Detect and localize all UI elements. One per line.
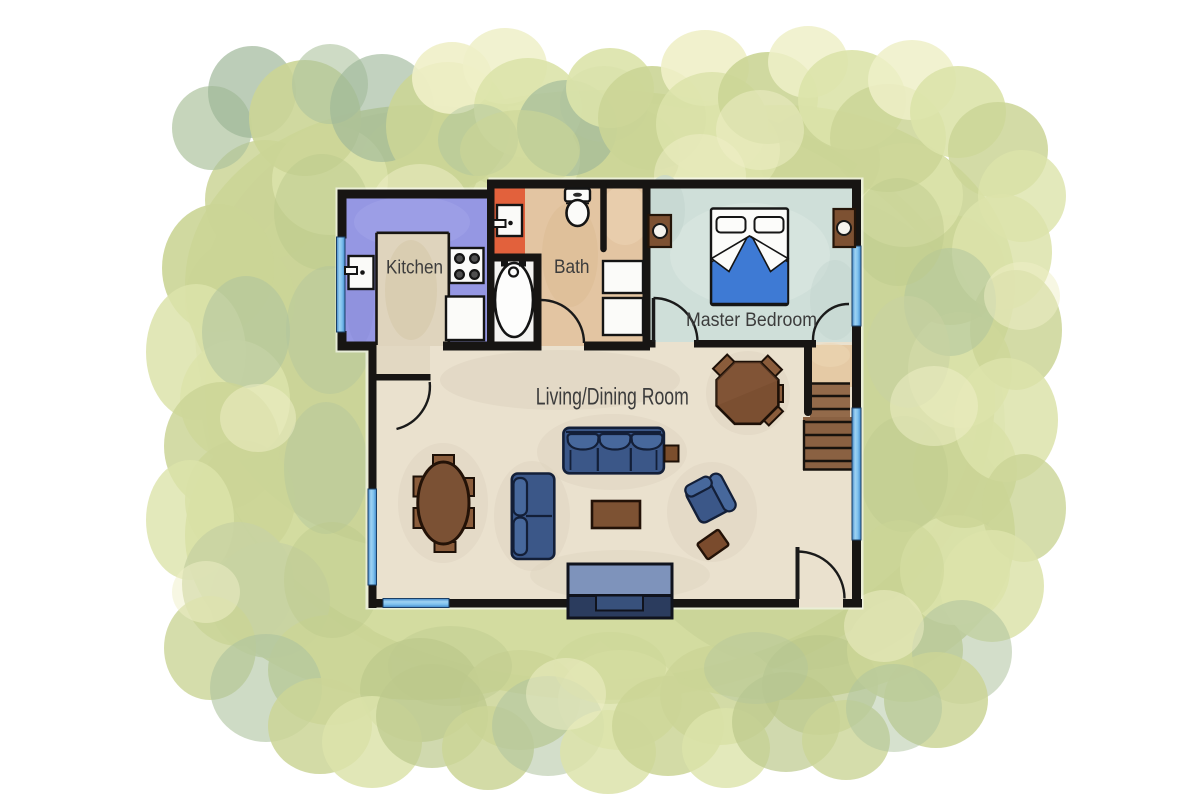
svg-text:Living/Dining Room: Living/Dining Room (536, 383, 689, 410)
svg-text:Bath: Bath (554, 257, 590, 278)
svg-text:Kitchen: Kitchen (386, 257, 443, 278)
svg-text:Master Bedroom: Master Bedroom (686, 310, 817, 331)
